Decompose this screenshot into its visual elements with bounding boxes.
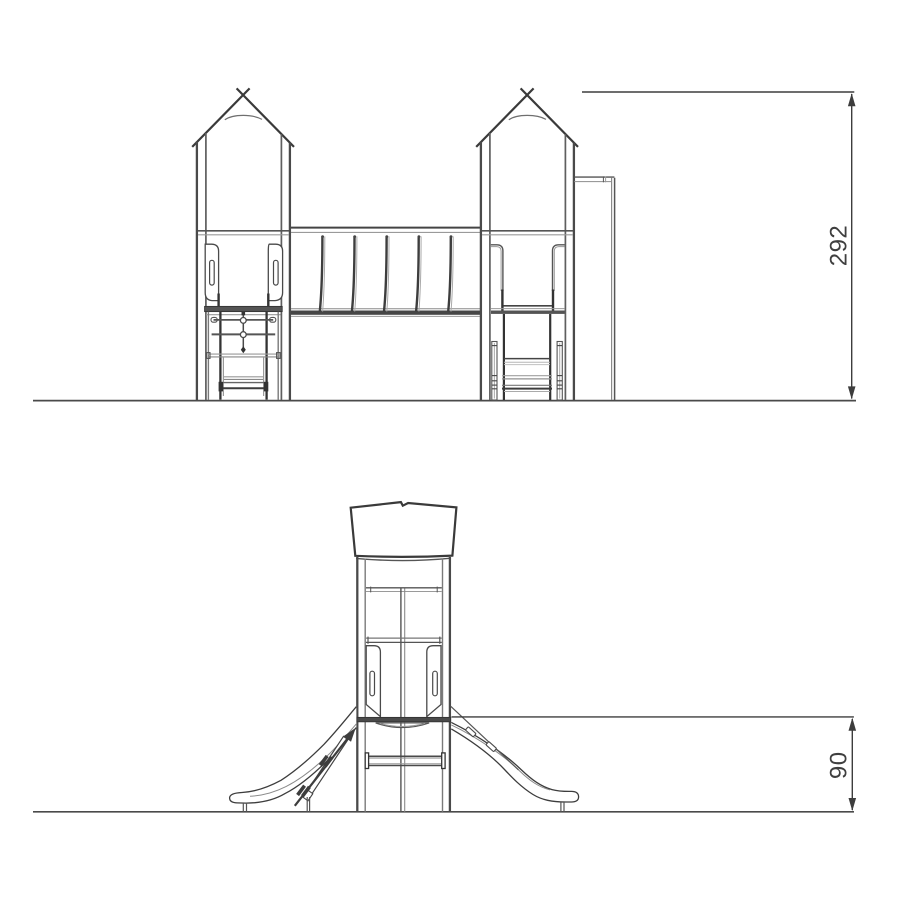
svg-text:292: 292 — [825, 225, 852, 267]
svg-text:90: 90 — [825, 751, 852, 779]
